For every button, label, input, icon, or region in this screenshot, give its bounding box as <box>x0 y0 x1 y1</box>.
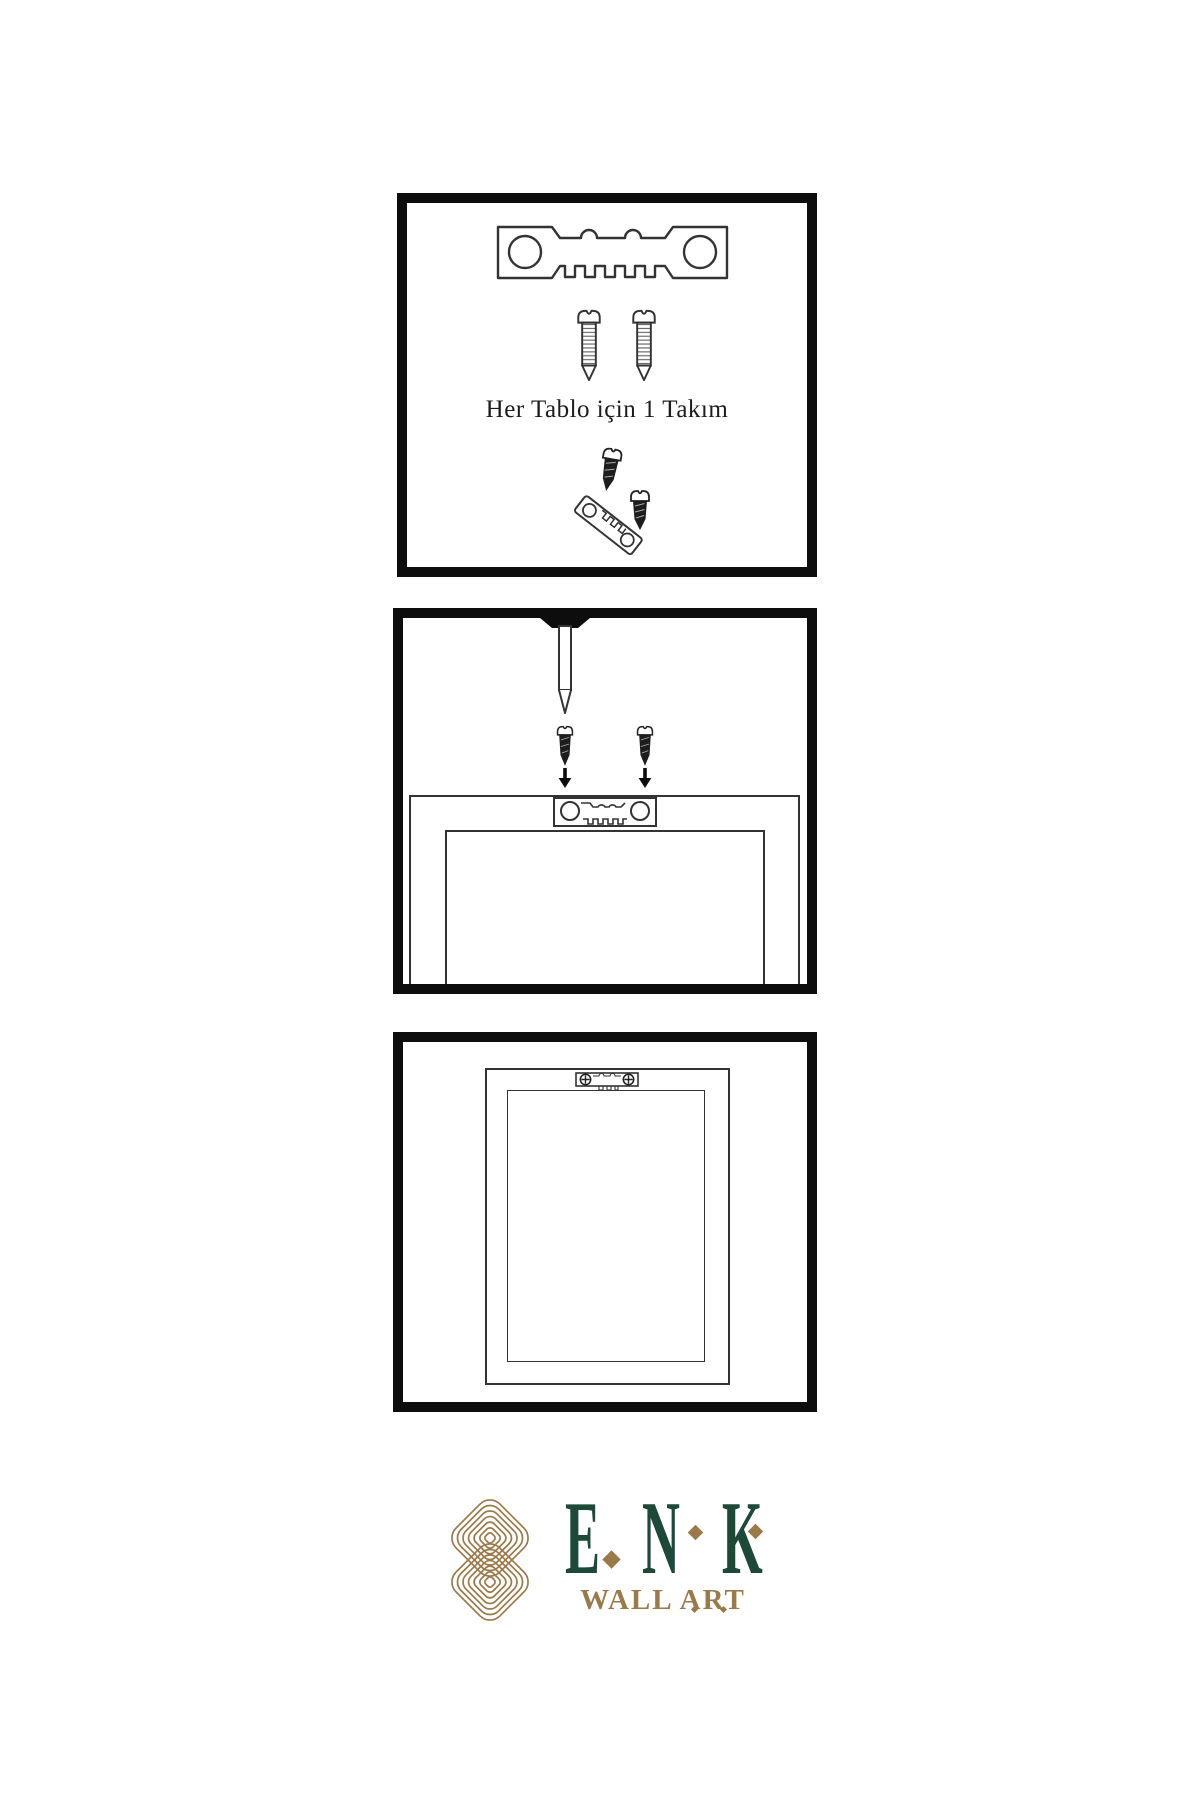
screw-icon <box>573 307 605 385</box>
small-screw-icon <box>555 725 575 768</box>
sawtooth-plate-icon <box>553 795 657 829</box>
arrow-down-icon <box>638 768 652 788</box>
brand-name: ENK <box>565 1485 765 1590</box>
panel-frame-mounted <box>393 1032 817 1412</box>
frame-back-inner-edge <box>445 830 765 986</box>
knot-logo-icon <box>438 1494 542 1626</box>
nail-icon <box>540 618 590 718</box>
small-screw-icon <box>635 725 655 768</box>
instruction-sheet: Her Tablo için 1 Takım <box>0 0 1200 1800</box>
brand-subtitle: WALL ART <box>565 1586 761 1615</box>
frame-back-inner-edge <box>507 1090 705 1362</box>
screw-icon <box>628 307 660 385</box>
panel-attach-hanger <box>393 608 817 994</box>
angled-sawtooth-hanger-icon <box>570 447 665 557</box>
brand-logo: ENK WALL ART <box>430 1490 780 1645</box>
sawtooth-hanger-icon <box>495 225 730 280</box>
panel-hardware-kit: Her Tablo için 1 Takım <box>397 193 817 577</box>
arrow-down-icon <box>558 768 572 788</box>
kit-caption: Her Tablo için 1 Takım <box>407 395 807 425</box>
mounted-sawtooth-plate-icon <box>575 1072 639 1092</box>
